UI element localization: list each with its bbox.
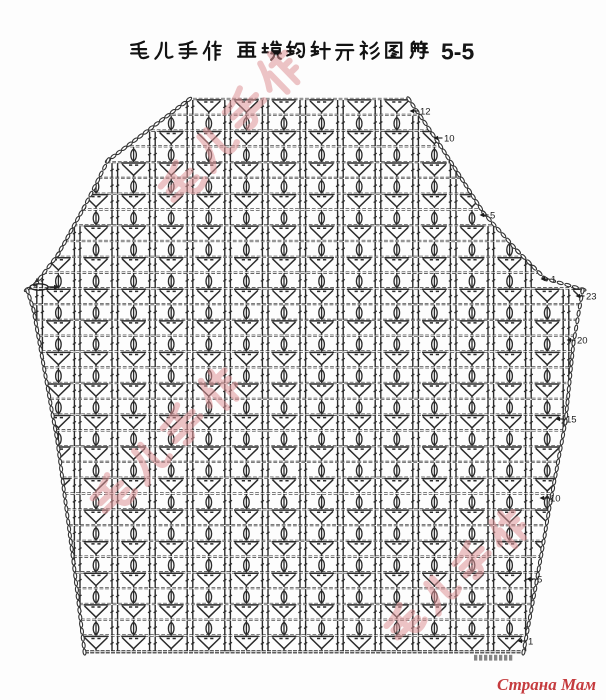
svg-text:1: 1 xyxy=(551,274,556,285)
svg-text:20: 20 xyxy=(577,335,588,346)
svg-text:5-5: 5-5 xyxy=(441,39,474,65)
svg-text:1: 1 xyxy=(528,636,533,647)
svg-text:Страна Мам: Страна Мам xyxy=(497,675,596,694)
svg-text:10: 10 xyxy=(550,493,561,504)
svg-text:12: 12 xyxy=(420,106,431,117)
svg-text:5: 5 xyxy=(537,574,542,585)
svg-text:10: 10 xyxy=(444,133,455,144)
svg-text:15: 15 xyxy=(566,414,577,425)
svg-text:23: 23 xyxy=(586,291,597,302)
svg-text:5: 5 xyxy=(490,210,495,221)
